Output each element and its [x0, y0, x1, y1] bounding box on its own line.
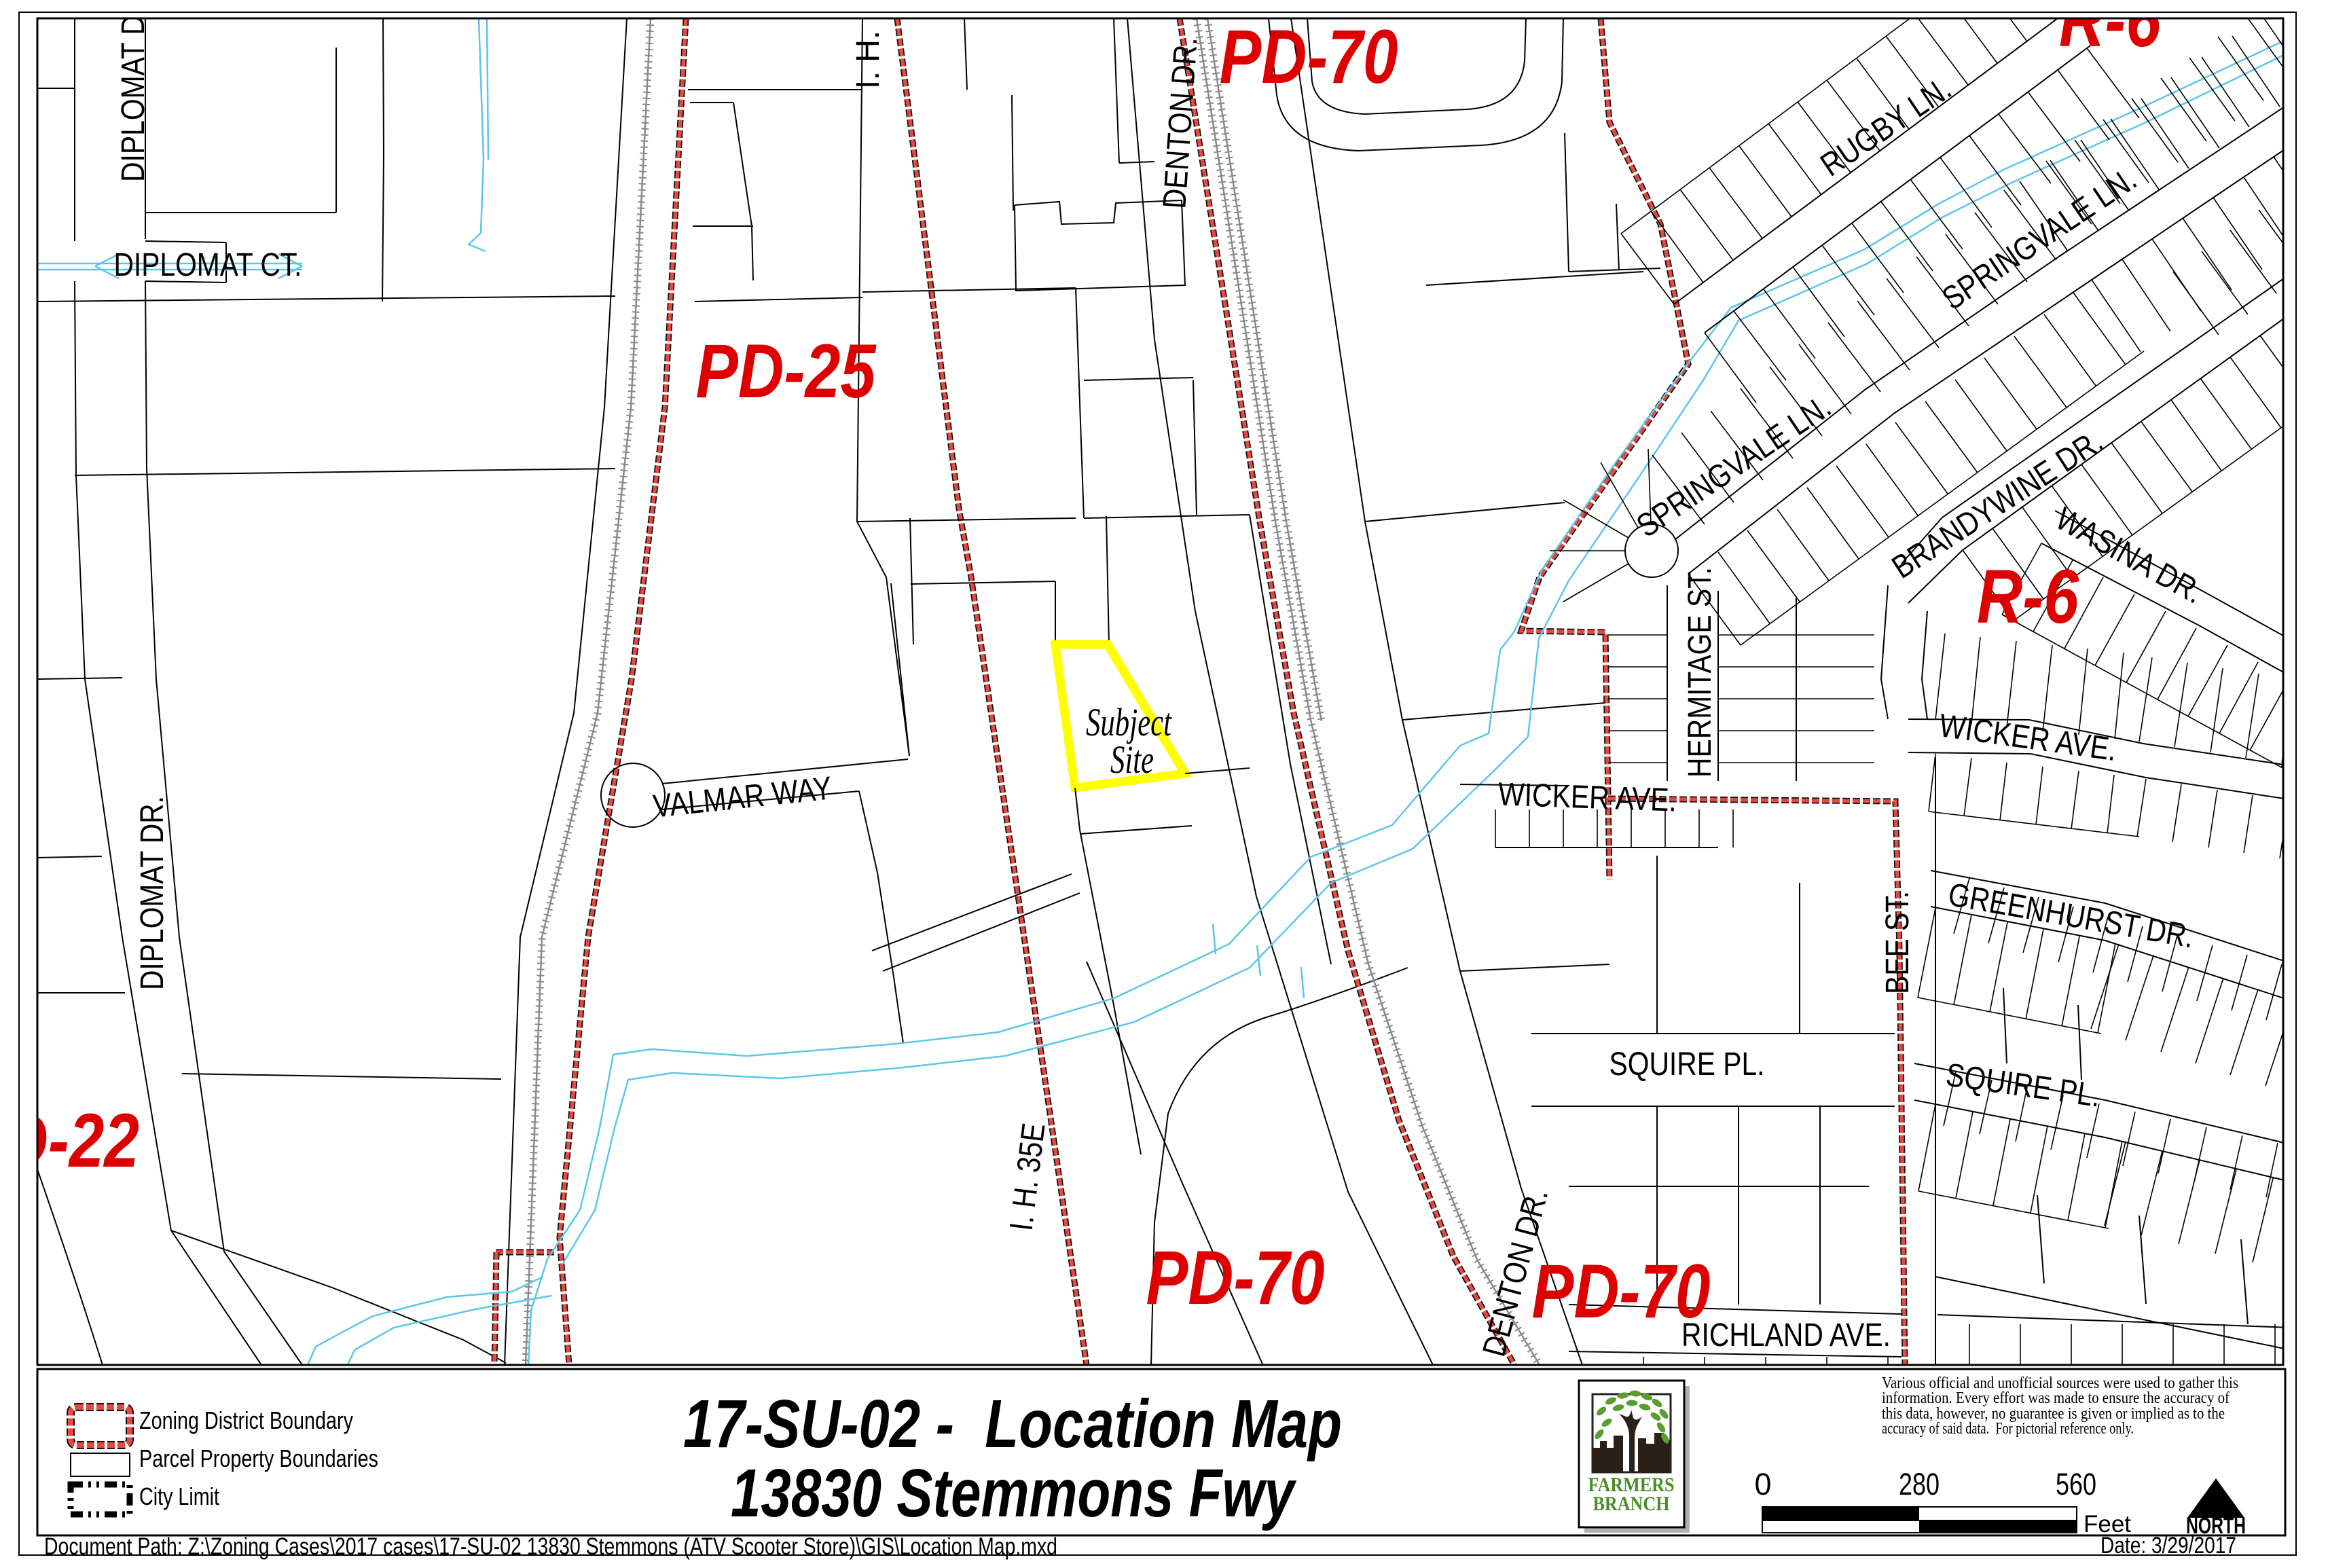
- svg-text:PD-25: PD-25: [696, 329, 877, 414]
- svg-text:Date: 3/29/2017: Date: 3/29/2017: [2100, 1533, 2236, 1558]
- svg-text:HERMITAGE ST.: HERMITAGE ST.: [1682, 567, 1718, 778]
- svg-text:City Limit: City Limit: [139, 1482, 219, 1510]
- svg-text:17-SU-02 - Location Map: 17-SU-02 - Location Map: [683, 1386, 1342, 1462]
- svg-text:Document Path: Z:\Zoning Cases: Document Path: Z:\Zoning Cases\2017 case…: [44, 1533, 1057, 1560]
- svg-text:0: 0: [1754, 1467, 1771, 1501]
- svg-text:Parcel Property Boundaries: Parcel Property Boundaries: [139, 1444, 378, 1472]
- svg-text:PD-70: PD-70: [1220, 14, 1398, 99]
- svg-text:RICHLAND AVE.: RICHLAND AVE.: [1681, 1317, 1891, 1353]
- svg-text:R-6: R-6: [1977, 554, 2079, 639]
- svg-text:DIPLOMAT CT.: DIPLOMAT CT.: [114, 247, 302, 283]
- svg-text:Zoning District Boundary: Zoning District Boundary: [139, 1406, 353, 1434]
- svg-text:560: 560: [2056, 1467, 2096, 1501]
- svg-text:13830 Stemmons Fwy: 13830 Stemmons Fwy: [731, 1455, 1296, 1531]
- svg-text:Site: Site: [1110, 737, 1154, 782]
- svg-text:WICKER AVE.: WICKER AVE.: [1497, 776, 1677, 818]
- svg-text:BRANCH: BRANCH: [1593, 1493, 1670, 1515]
- svg-text:I. H.: I. H.: [850, 31, 886, 89]
- svg-text:DIPLOMAT DR.: DIPLOMAT DR.: [134, 796, 170, 990]
- svg-text:BEE ST.: BEE ST.: [1880, 891, 1916, 994]
- svg-text:accuracy of said data. For pi: accuracy of said data. For pictorial ref…: [1882, 1420, 2134, 1438]
- svg-text:PD-70: PD-70: [1146, 1235, 1325, 1320]
- svg-text:SQUIRE PL.: SQUIRE PL.: [1609, 1046, 1765, 1082]
- svg-text:DIPLOMAT D: DIPLOMAT D: [115, 15, 151, 182]
- svg-text:280: 280: [1899, 1467, 1940, 1501]
